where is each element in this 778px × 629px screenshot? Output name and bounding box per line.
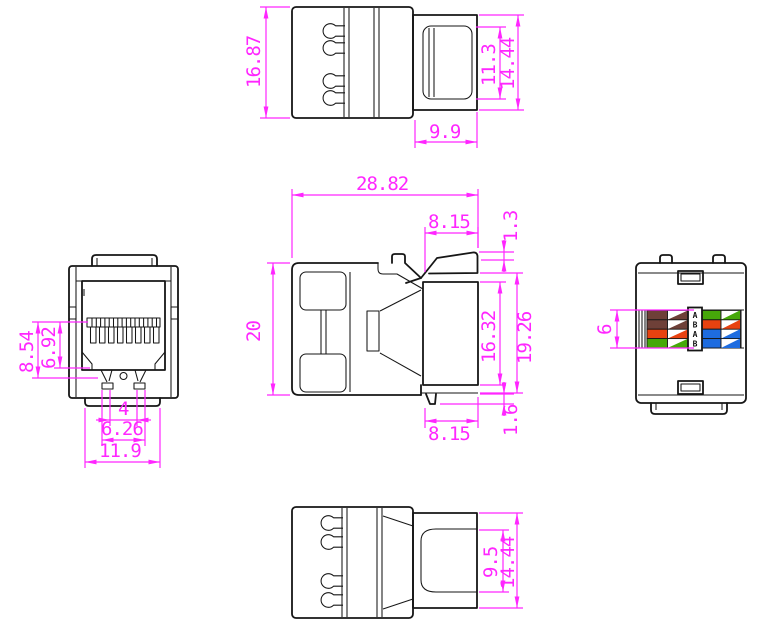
dim-top-body-height: 16.87 [243,35,265,88]
latch-spring [323,24,345,39]
wire-color-cell [702,339,721,348]
dim-side-plug-overall-height: 19.26 [514,311,536,364]
latch-spring [321,535,343,550]
latch-spring [321,593,343,608]
latch-spring [323,41,345,56]
dim-side-latch-top: 8.15 [428,211,470,233]
bottom-view-dimensions: 9.5 14.44 [479,513,523,608]
latch-lip [406,252,478,283]
side-view-body [292,252,478,404]
bottom-view-body [292,507,477,618]
top-view-body [292,7,477,118]
wire-color-cell [647,320,668,329]
latch-pin [120,373,127,380]
contact-slots [92,318,157,327]
latch-spring [323,91,345,106]
dim-side-overall-length: 28.82 [356,173,408,195]
wiring-letter: A [693,311,698,320]
bottom-view: 9.5 14.44 [292,507,523,618]
dim-front-latch-slot-width: 4 [118,398,129,420]
side-view: 28.82 8.15 1.3 20 16.32 19.26 [243,173,536,445]
boot-opening [421,529,477,592]
keystone-jack-drawing: 16.87 11.3 14.44 9.9 [0,0,778,629]
front-view: 8.54 6.92 4 6.26 11.9 [16,255,178,468]
contact-pins [91,327,160,343]
dim-front-contact-height: 6.92 [38,327,60,369]
latch-spring [321,574,343,589]
dim-front-latch-width: 6.26 [101,418,143,440]
dim-front-jack-height: 8.54 [16,331,38,373]
side-view-dimensions: 28.82 8.15 1.3 20 16.32 19.26 [243,173,536,445]
front-view-body [69,255,178,406]
front-view-dimensions: 8.54 6.92 4 6.26 11.9 [16,322,160,468]
dim-side-opening-height: 16.32 [478,311,500,363]
top-view: 16.87 11.3 14.44 9.9 [243,7,524,148]
dim-top-plug-height: 14.44 [497,37,519,90]
wiring-letters: A B A B [693,311,698,348]
rear-view: A B A B 6 [594,255,746,414]
bottom-window [678,381,703,394]
keystone-nose-tab [92,255,157,266]
engineering-drawing-canvas: 16.87 11.3 14.44 9.9 [0,0,778,629]
wire-color-cell [702,320,721,329]
wiring-letter: A [693,330,698,339]
dim-side-lip-height: 1.3 [500,210,522,242]
wire-color-cell [647,310,668,319]
wiring-letter: B [693,339,698,348]
dim-side-foot-height: 1.6 [500,404,522,436]
wire-color-cell [702,329,721,338]
dim-side-latch-bottom: 8.15 [428,423,470,445]
latch-spring [323,74,345,89]
dim-rear-label-height: 6 [594,324,616,335]
contact-bar [87,318,160,327]
dim-side-body-height: 20 [243,321,265,342]
wiring-letter: B [693,321,698,330]
dim-top-plug-length: 9.9 [429,121,461,143]
wire-color-cell [702,310,721,319]
mount-foot [426,394,436,404]
bottom-base-tab [651,403,727,414]
wire-color-cell [647,339,668,348]
top-view-dimensions: 16.87 11.3 14.44 9.9 [243,7,524,148]
dim-front-tab-width: 11.9 [99,440,141,462]
latch-spring [321,516,343,531]
wire-color-cell [647,329,668,338]
dim-bottom-plug-height: 14.44 [497,536,519,589]
